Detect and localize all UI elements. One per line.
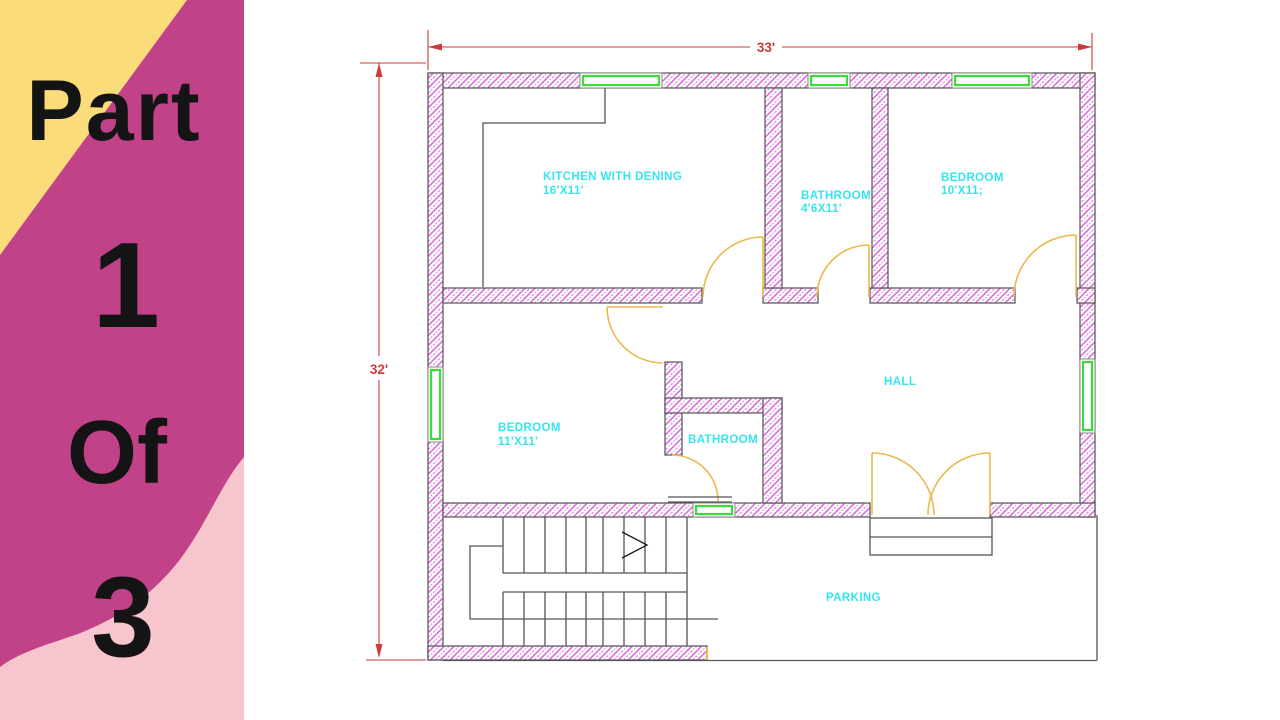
panel-word-of: Of <box>67 403 168 503</box>
door-bathroom-bottom <box>672 455 718 501</box>
window-bedroom-top <box>952 73 1032 88</box>
label-bedroom-top-size: 10'X11; <box>941 185 983 197</box>
floor-plan: 33' 32' KITCHEN WITH DENING 16'X11' BATH… <box>360 30 1097 661</box>
stairs-inner-boundary <box>470 546 718 619</box>
dim-arrow-right <box>1078 44 1092 51</box>
thumbnail-canvas: Part 1 Of 3 <box>0 0 1280 720</box>
bathroom-threshold <box>668 497 732 502</box>
wall-middle-left <box>443 288 702 303</box>
panel-word-part: Part <box>26 63 201 159</box>
stairs <box>470 517 718 646</box>
door-kitchen <box>703 237 763 297</box>
parking-boundary <box>443 515 1097 661</box>
label-kitchen-size: 16'X11' <box>543 185 584 197</box>
wall-middle-center <box>763 288 818 303</box>
dim-arrow-left <box>428 44 442 51</box>
wall-middle-end <box>1077 288 1095 303</box>
label-bedroom-left-name: BEDROOM <box>498 422 561 434</box>
intro-panel: Part 1 Of 3 <box>0 0 244 720</box>
label-kitchen-name: KITCHEN WITH DENING <box>543 171 682 183</box>
panel-word-total: 3 <box>91 554 154 681</box>
door-bedroom-left <box>607 307 663 363</box>
dimension-width-label: 33' <box>757 40 775 55</box>
label-bedroom-left-size: 11'X11' <box>498 436 538 448</box>
wall-bathroom-bottom-right <box>763 398 782 503</box>
window-bedroom-left <box>428 367 443 442</box>
door-main-entrance <box>872 453 990 515</box>
door-bedroom-top <box>1014 235 1076 297</box>
wall-bathroom-top-right <box>872 88 888 288</box>
panel-word-number: 1 <box>92 217 160 353</box>
label-parking: PARKING <box>826 592 881 604</box>
window-kitchen <box>580 73 662 88</box>
label-bathroom-top-name: BATHROOM <box>801 190 871 202</box>
dim-arrow-bottom <box>376 644 383 658</box>
wall-lower-right <box>990 503 1095 517</box>
dimension-height-label: 32' <box>370 362 388 377</box>
dim-arrow-top <box>376 63 383 77</box>
label-hall: HALL <box>884 376 916 388</box>
door-bathroom-top <box>817 245 869 297</box>
window-bathroom-bottom <box>693 503 735 517</box>
label-bedroom-top-name: BEDROOM <box>941 172 1004 184</box>
wall-bottom-stairs <box>428 646 707 660</box>
wall-lower-left <box>443 503 870 517</box>
stairs-direction-arrow <box>622 532 647 558</box>
window-bathroom-top <box>808 73 850 88</box>
drawing: Part 1 Of 3 <box>0 0 1280 720</box>
label-bathroom-top-size: 4'6X11' <box>801 203 842 215</box>
label-bathroom-bottom: BATHROOM <box>688 434 758 446</box>
entrance-step <box>870 518 992 555</box>
wall-middle-right <box>870 288 1015 303</box>
walls <box>428 73 1095 660</box>
wall-bathroom-top-left <box>765 88 782 288</box>
window-hall-right <box>1080 359 1095 433</box>
